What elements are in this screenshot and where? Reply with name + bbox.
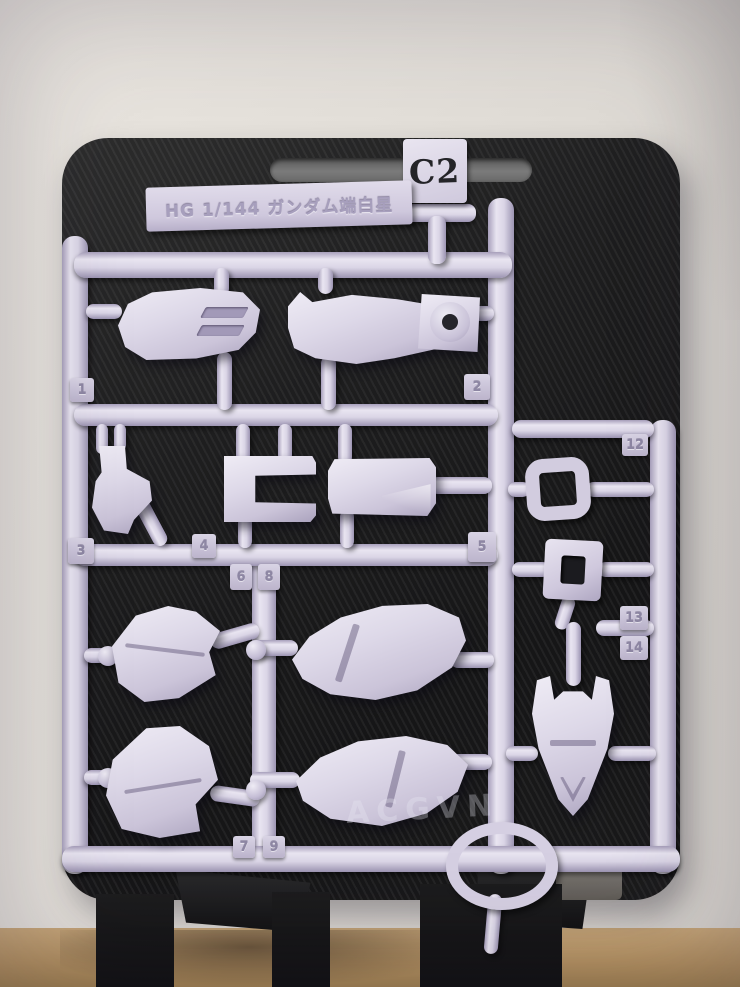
c2-tab-stem — [428, 216, 446, 264]
sprue-rail-center — [252, 556, 276, 858]
part-number-tag: 5 — [468, 532, 496, 562]
part-number-tag: 14 — [620, 636, 648, 660]
part-number-tag: 2 — [464, 374, 490, 400]
tag-number: 8 — [264, 570, 273, 585]
part-surface — [224, 456, 316, 522]
runner-label-text: HG 1/144 ガンダム端白星 — [164, 190, 393, 221]
part-visor-line — [550, 740, 596, 746]
sprue-ball-joint — [246, 640, 266, 660]
sprue-rail-bottom — [62, 846, 680, 872]
part-cube-joint — [542, 539, 603, 602]
stand-leg-left — [96, 894, 174, 987]
part-surface — [288, 292, 440, 364]
stand-handle-slot — [270, 158, 532, 182]
part-vent-detail — [196, 325, 244, 336]
sprue-rail-mid-upper — [74, 404, 498, 426]
photo-scene: C2 HG 1/144 ガンダム端白星 — [0, 0, 740, 987]
tag-number: 5 — [477, 540, 486, 555]
runner-label-bar: HG 1/144 ガンダム端白星 — [145, 180, 412, 231]
tag-number: 9 — [269, 840, 278, 855]
gate-stub — [598, 562, 654, 577]
tag-number: 6 — [236, 570, 245, 585]
part-vent-detail — [200, 307, 248, 318]
part-square-ring — [524, 456, 592, 522]
part-number-tag: 7 — [233, 836, 255, 858]
part-leg-armor-large-upper — [292, 604, 466, 700]
part-small-bracket — [92, 446, 152, 534]
part-shoulder-armor-lower — [106, 726, 218, 838]
part-ring — [446, 822, 558, 910]
gate-stub — [586, 482, 654, 497]
part-surface — [292, 604, 466, 700]
sprue-rail-top — [74, 252, 512, 278]
part-number-tag: 8 — [258, 564, 280, 590]
part-socket-hole — [442, 314, 458, 330]
part-leg-armor — [118, 288, 260, 360]
gate-stub — [86, 304, 122, 319]
gate-stub — [608, 746, 656, 761]
tag-number: 3 — [76, 544, 85, 559]
stand-leg-center — [272, 892, 330, 987]
tag-number: 12 — [626, 438, 644, 453]
tag-number: 2 — [472, 380, 481, 395]
tag-number: 4 — [199, 539, 208, 554]
part-surface — [106, 726, 218, 838]
part-number-tag: 1 — [70, 378, 94, 402]
tag-number: 1 — [77, 383, 86, 398]
part-cube-hole — [560, 555, 585, 584]
tag-number: 7 — [239, 840, 248, 855]
part-number-tag: 13 — [620, 606, 648, 630]
part-forearm — [288, 286, 494, 366]
part-c-bracket — [224, 456, 316, 522]
part-surface — [118, 288, 260, 360]
gate-stub — [430, 477, 492, 494]
part-chest-mask — [532, 676, 614, 816]
sprue-ball-joint — [246, 780, 266, 800]
part-number-tag: 3 — [68, 538, 94, 564]
tag-number: 14 — [625, 641, 643, 656]
part-block — [328, 458, 436, 516]
tag-number: 13 — [625, 611, 643, 626]
part-surface — [92, 446, 152, 534]
part-number-tag: 12 — [622, 434, 648, 456]
part-number-tag: 4 — [192, 534, 216, 558]
runner-code-text: C2 — [409, 151, 462, 192]
part-number-tag: 9 — [263, 836, 285, 858]
sprue-rail-mid-lower — [74, 544, 498, 566]
runner-code-tab: C2 — [403, 139, 467, 203]
part-number-tag: 6 — [230, 564, 252, 590]
part-shoulder-armor-upper — [112, 606, 220, 702]
gate-stub — [217, 352, 232, 410]
